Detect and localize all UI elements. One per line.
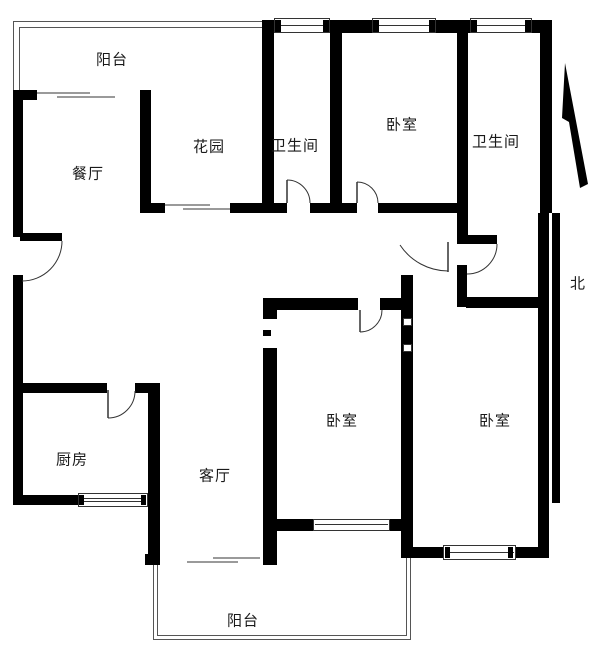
bedroom2-door-arc	[360, 310, 382, 332]
room-label-garden: 花园	[193, 136, 225, 157]
entry-door-arc	[22, 241, 62, 281]
room-label-bath1: 卫生间	[271, 135, 319, 156]
room-label-kitchen: 厨房	[56, 449, 88, 470]
floor-plan: 阳台 餐厅 花园 卫生间 卧室 卫生间 北 厨房 客厅 卧室 卧室 阳台	[0, 0, 600, 666]
hall-door-arc	[400, 245, 448, 271]
bath1-door-arc	[287, 180, 310, 203]
room-label-living: 客厅	[199, 465, 231, 486]
bedroom1-door-arc	[357, 182, 378, 203]
room-label-bedroom3: 卧室	[479, 410, 511, 431]
room-label-dining: 餐厅	[72, 163, 104, 184]
room-label-bedroom2: 卧室	[326, 410, 358, 431]
room-label-balcony-top: 阳台	[96, 49, 128, 70]
north-arrow-icon	[562, 63, 588, 188]
door-arc-layer	[0, 0, 600, 666]
bath2-door-arc	[467, 244, 497, 274]
kitchen-door-arc	[108, 391, 135, 418]
compass-north-label: 北	[570, 273, 586, 294]
room-label-balcony-bottom: 阳台	[227, 610, 259, 631]
room-label-bedroom1: 卧室	[386, 114, 418, 135]
room-label-bath2: 卫生间	[472, 131, 520, 152]
